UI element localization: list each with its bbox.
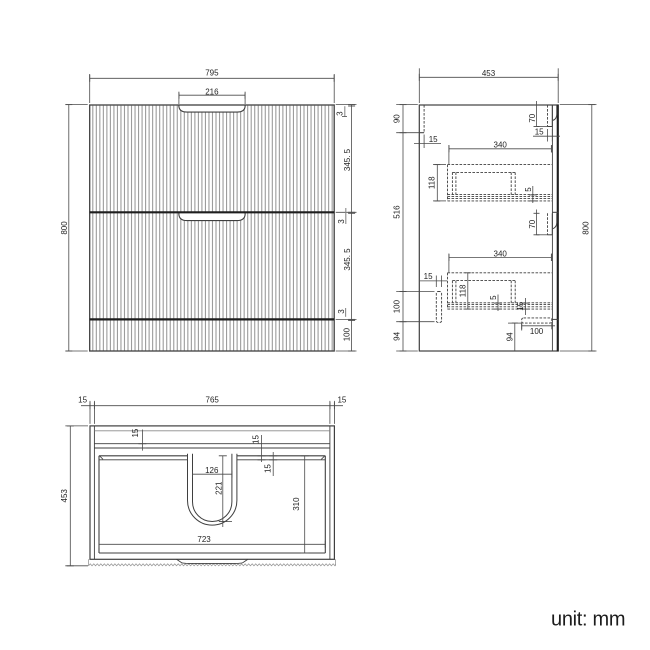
svg-text:5: 5 <box>524 187 533 192</box>
svg-text:118: 118 <box>427 176 436 189</box>
svg-text:70: 70 <box>528 113 537 122</box>
svg-text:100: 100 <box>392 299 401 313</box>
svg-text:3: 3 <box>337 219 346 224</box>
svg-text:723: 723 <box>197 535 211 544</box>
svg-text:unit: mm: unit: mm <box>551 609 625 631</box>
svg-text:340: 340 <box>494 249 508 258</box>
svg-text:800: 800 <box>60 221 69 235</box>
svg-text:15: 15 <box>516 301 525 310</box>
svg-text:70: 70 <box>528 219 537 228</box>
svg-text:345. 5: 345. 5 <box>343 148 352 171</box>
svg-text:100: 100 <box>530 327 544 336</box>
svg-text:453: 453 <box>60 489 69 503</box>
svg-text:15: 15 <box>131 428 140 437</box>
svg-text:221: 221 <box>214 481 223 495</box>
svg-text:15: 15 <box>263 464 272 473</box>
svg-text:345. 5: 345. 5 <box>343 248 352 271</box>
svg-text:15: 15 <box>424 272 433 281</box>
svg-text:118: 118 <box>458 284 467 297</box>
svg-text:216: 216 <box>205 87 219 96</box>
svg-text:3: 3 <box>335 111 344 116</box>
svg-text:15: 15 <box>251 435 260 444</box>
svg-text:3: 3 <box>337 309 346 314</box>
svg-text:15: 15 <box>78 395 87 404</box>
svg-text:516: 516 <box>392 205 401 219</box>
svg-text:94: 94 <box>505 332 514 341</box>
svg-text:310: 310 <box>292 497 301 511</box>
svg-text:800: 800 <box>581 221 590 235</box>
svg-text:15: 15 <box>535 128 544 137</box>
svg-text:15: 15 <box>429 135 438 144</box>
svg-text:453: 453 <box>482 69 496 78</box>
svg-text:5: 5 <box>489 295 498 300</box>
svg-text:795: 795 <box>205 68 219 77</box>
svg-text:126: 126 <box>205 466 219 475</box>
svg-text:765: 765 <box>206 395 220 404</box>
svg-text:100: 100 <box>342 327 351 341</box>
svg-text:340: 340 <box>494 141 508 150</box>
svg-text:90: 90 <box>392 114 401 123</box>
svg-text:15: 15 <box>337 395 346 404</box>
svg-text:94: 94 <box>392 331 401 340</box>
